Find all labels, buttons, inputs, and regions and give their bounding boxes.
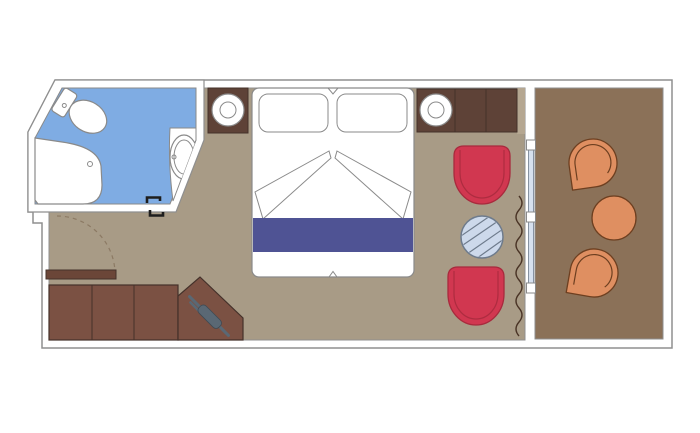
- armchair-upper: [454, 146, 510, 204]
- round-glass-table: [461, 216, 503, 258]
- wardrobe: [49, 285, 178, 340]
- sliding-door-frame-middle: [527, 212, 536, 222]
- pillow-right: [337, 94, 407, 132]
- sliding-door-panel-top: [529, 150, 534, 212]
- lamp-right: [420, 94, 452, 126]
- armchair-lower-body: [448, 267, 504, 325]
- floorplan-canvas: [0, 0, 700, 433]
- balcony-round-table: [592, 196, 636, 240]
- pillow-left: [259, 94, 328, 132]
- sliding-door-frame-bottom: [527, 283, 536, 293]
- floorplan-svg: [0, 0, 700, 433]
- armchair-upper-body: [454, 146, 510, 204]
- lamp-left: [212, 94, 244, 126]
- armchair-lower: [448, 267, 504, 325]
- bed-runner: [253, 218, 413, 252]
- sliding-door-panel-bottom: [529, 222, 534, 283]
- bathroom: [28, 80, 204, 216]
- entrance-door: [46, 270, 116, 279]
- sliding-door-frame-top: [527, 140, 536, 150]
- cabin-floor-light-strip: [517, 88, 525, 134]
